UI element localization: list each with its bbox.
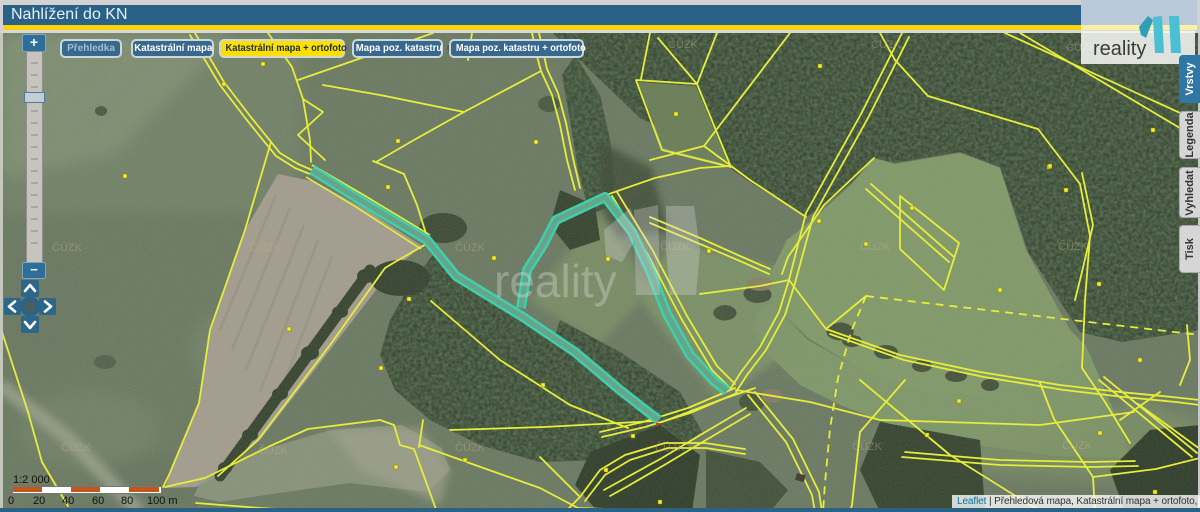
svg-text:ČÚZK: ČÚZK — [250, 241, 281, 254]
svg-text:ČÚZK: ČÚZK — [852, 440, 883, 453]
svg-text:ČÚZK: ČÚZK — [52, 241, 83, 254]
svg-text:ČÚZK: ČÚZK — [258, 444, 289, 457]
svg-text:ČÚZK: ČÚZK — [455, 441, 486, 454]
svg-text:ČÚZK: ČÚZK — [1058, 240, 1089, 253]
svg-text:reality: reality — [494, 255, 617, 307]
svg-text:ČÚZK: ČÚZK — [871, 38, 902, 51]
svg-text:ČÚZK: ČÚZK — [1062, 439, 1093, 452]
svg-text:ČÚZK: ČÚZK — [655, 441, 686, 454]
svg-text:ČÚZK: ČÚZK — [61, 441, 92, 454]
svg-text:ČÚZK: ČÚZK — [668, 38, 699, 51]
svg-text:ČÚZK: ČÚZK — [455, 241, 486, 254]
svg-text:ČÚZK: ČÚZK — [860, 240, 891, 253]
